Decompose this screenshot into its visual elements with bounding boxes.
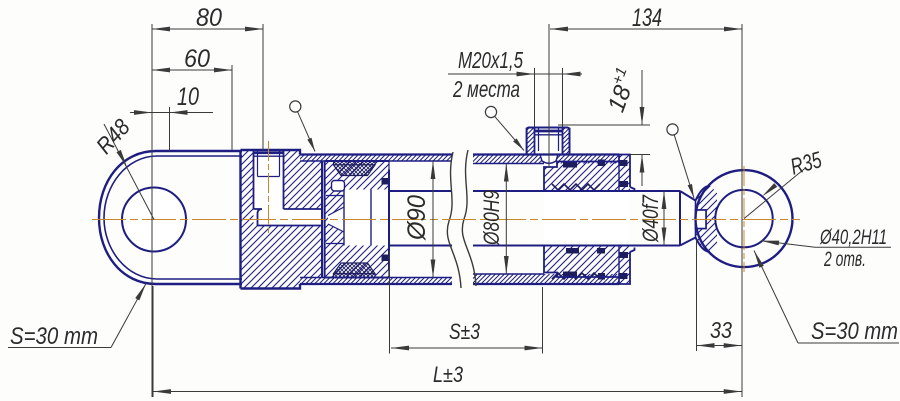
svg-text:Ø40f7: Ø40f7 bbox=[638, 194, 663, 242]
svg-text:L±3: L±3 bbox=[433, 362, 464, 387]
svg-text:2 отв.: 2 отв. bbox=[823, 248, 866, 271]
svg-text:M20x1,5: M20x1,5 bbox=[458, 47, 523, 73]
svg-text:Ø80H9: Ø80H9 bbox=[479, 190, 504, 246]
svg-text:Ø90: Ø90 bbox=[403, 195, 431, 241]
svg-text:33: 33 bbox=[710, 317, 732, 343]
svg-text:60: 60 bbox=[184, 45, 210, 73]
svg-text:134: 134 bbox=[632, 4, 662, 32]
svg-text:S=30 mm: S=30 mm bbox=[811, 318, 898, 345]
svg-text:S±3: S±3 bbox=[449, 319, 481, 344]
svg-text:S=30 mm: S=30 mm bbox=[10, 323, 98, 350]
svg-text:10: 10 bbox=[177, 83, 199, 111]
svg-text:2 места: 2 места bbox=[452, 76, 520, 102]
svg-text:80: 80 bbox=[196, 4, 222, 32]
svg-text:Ø40,2H11: Ø40,2H11 bbox=[819, 226, 887, 249]
